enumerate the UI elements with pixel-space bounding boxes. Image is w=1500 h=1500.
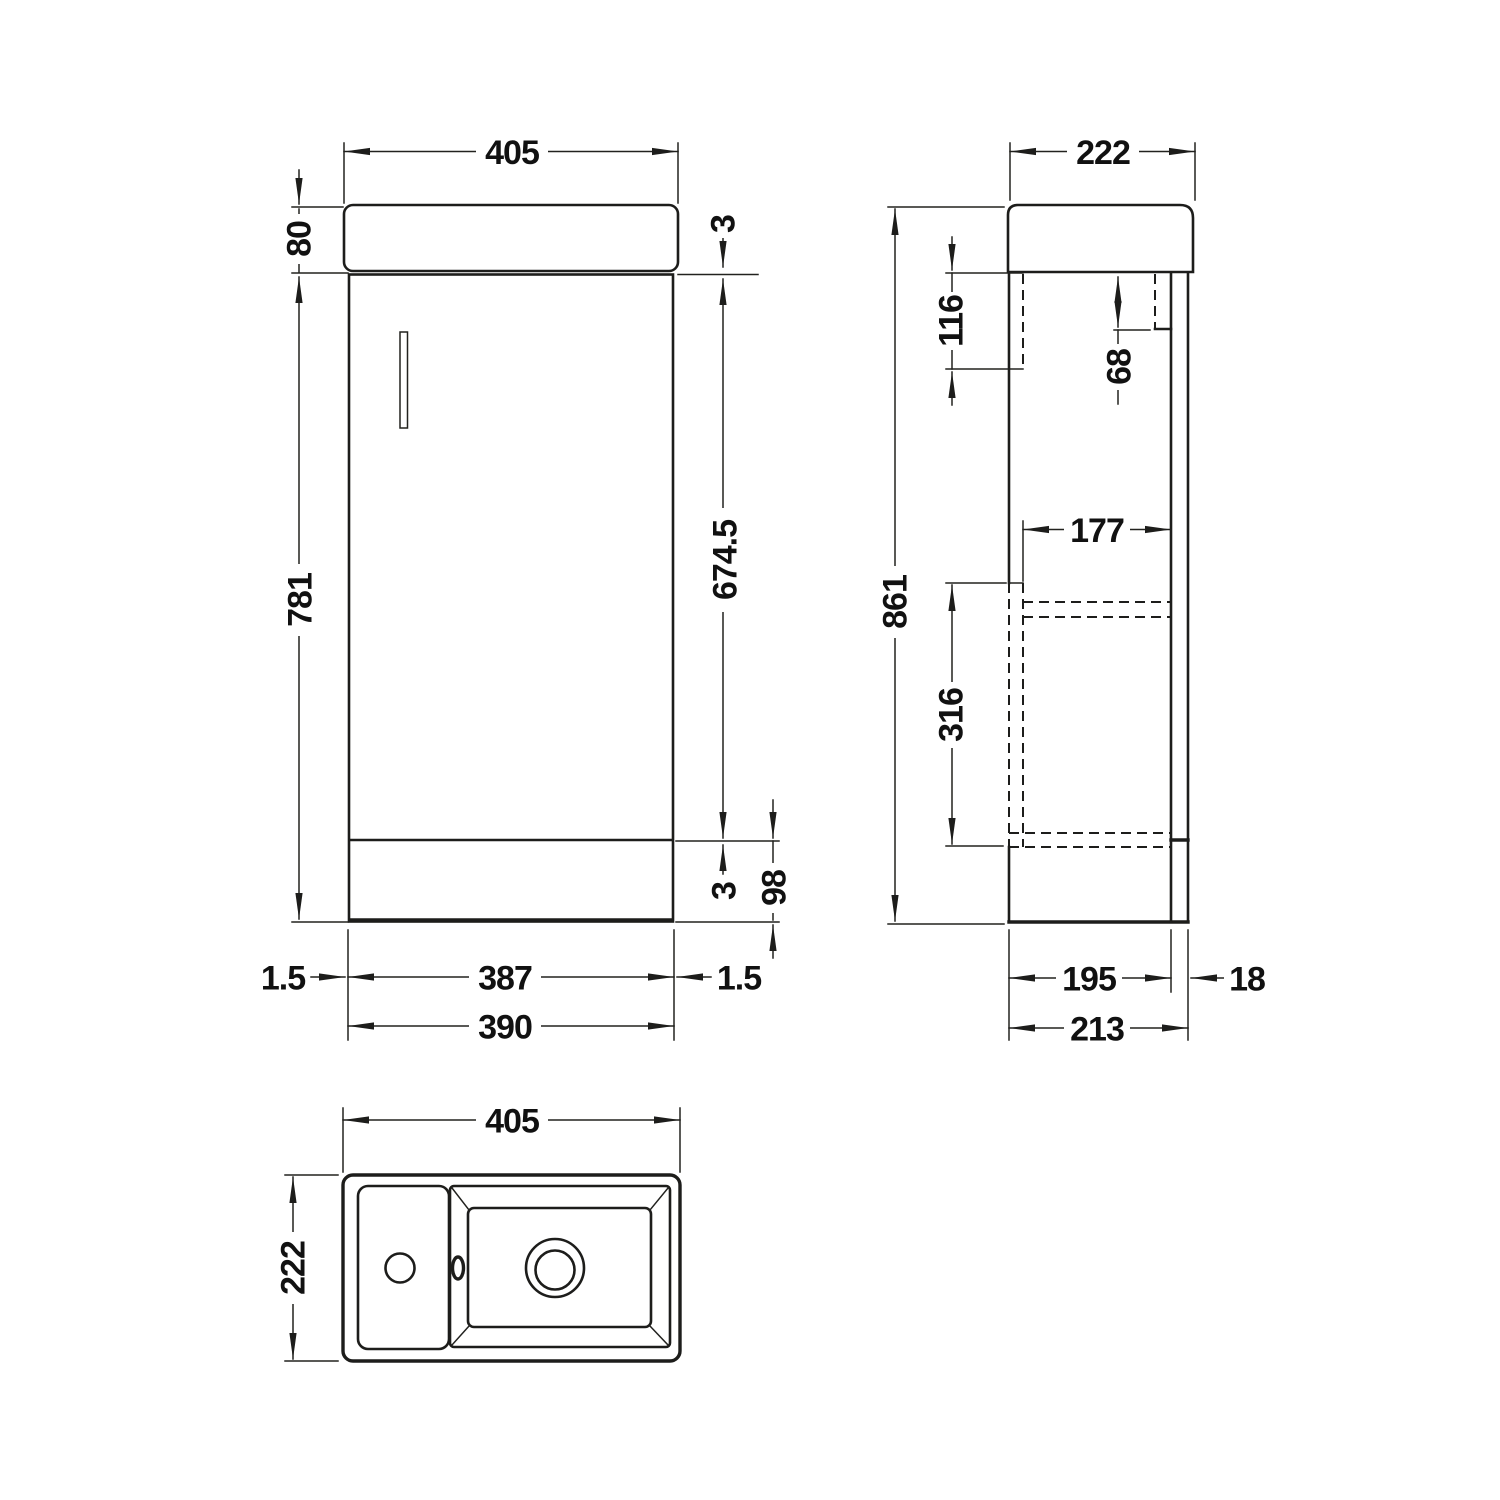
hidden-detail-lines bbox=[1009, 274, 1171, 847]
svg-text:861: 861 bbox=[876, 575, 914, 629]
svg-text:222: 222 bbox=[1076, 134, 1130, 172]
svg-text:387: 387 bbox=[478, 959, 532, 997]
dim-front-cabinet-width: 390 bbox=[469, 1008, 541, 1046]
bowl-outer-outline bbox=[450, 1186, 670, 1347]
side-view-outlines bbox=[1008, 205, 1193, 922]
dim-side-overall-depth: 213 bbox=[1064, 1010, 1130, 1048]
technical-drawing-page: 405 80 3 781 674.5 3 bbox=[0, 0, 1500, 1500]
svg-text:222: 222 bbox=[274, 1241, 312, 1295]
svg-text:1.5: 1.5 bbox=[261, 959, 305, 997]
dim-front-cabinet-height: 781 bbox=[281, 564, 319, 636]
side-view-dimensions bbox=[888, 143, 1224, 1040]
svg-text:213: 213 bbox=[1070, 1010, 1124, 1048]
tap-hole bbox=[386, 1254, 415, 1283]
dim-side-overall-height: 861 bbox=[876, 566, 914, 638]
svg-text:781: 781 bbox=[281, 573, 319, 627]
dim-front-top-gap: 3 bbox=[704, 210, 742, 238]
svg-text:3: 3 bbox=[705, 882, 743, 900]
vanity-unit-technical-drawing: 405 80 3 781 674.5 3 bbox=[0, 0, 1500, 1500]
dim-side-hinge-top-offset: 116 bbox=[932, 292, 970, 350]
svg-text:405: 405 bbox=[485, 1102, 539, 1140]
side-view: 222 861 116 68 177 316 bbox=[876, 134, 1270, 1049]
dim-front-right-gap: 1.5 bbox=[712, 959, 766, 997]
dim-side-hinge-front-offset: 68 bbox=[1100, 344, 1138, 390]
svg-text:316: 316 bbox=[932, 688, 970, 742]
dim-front-basin-width: 405 bbox=[476, 134, 548, 172]
dim-plan-width: 405 bbox=[476, 1102, 548, 1140]
svg-text:80: 80 bbox=[280, 221, 318, 257]
basin-front-outline bbox=[344, 205, 678, 271]
dim-front-basin-height: 80 bbox=[280, 214, 318, 264]
svg-text:177: 177 bbox=[1070, 512, 1124, 550]
svg-text:195: 195 bbox=[1062, 960, 1116, 998]
dim-side-internal-depth: 177 bbox=[1064, 512, 1130, 550]
tap-ledge-outline bbox=[358, 1186, 449, 1349]
dim-front-door-width: 387 bbox=[469, 959, 541, 997]
svg-text:674.5: 674.5 bbox=[706, 520, 744, 600]
front-view-outlines bbox=[344, 205, 678, 922]
dim-side-door-thickness: 18 bbox=[1224, 960, 1270, 998]
svg-text:68: 68 bbox=[1100, 349, 1138, 385]
svg-text:1.5: 1.5 bbox=[717, 959, 761, 997]
dim-front-bottom-gap: 3 bbox=[705, 877, 743, 905]
svg-text:405: 405 bbox=[485, 134, 539, 172]
basin-plan-outline bbox=[343, 1175, 680, 1361]
plan-view-outlines bbox=[343, 1175, 680, 1361]
plan-view: 405 222 bbox=[274, 1102, 680, 1361]
bowl-inner-outline bbox=[468, 1208, 651, 1327]
dim-plan-depth: 222 bbox=[274, 1232, 312, 1304]
dim-front-plinth-height: 98 bbox=[755, 863, 793, 913]
overflow-hole bbox=[453, 1257, 464, 1279]
cabinet-front-outline bbox=[349, 275, 673, 922]
bowl-corner-bevels bbox=[452, 1188, 668, 1345]
dim-side-basin-depth: 222 bbox=[1067, 134, 1139, 172]
front-view: 405 80 3 781 674.5 3 bbox=[256, 134, 793, 1047]
basin-side-outline bbox=[1008, 205, 1193, 272]
door-handle bbox=[400, 332, 408, 428]
drain-inner bbox=[536, 1251, 575, 1290]
dim-front-left-gap: 1.5 bbox=[256, 959, 310, 997]
svg-text:390: 390 bbox=[478, 1008, 532, 1046]
plan-view-labels: 405 222 bbox=[274, 1102, 548, 1304]
svg-text:3: 3 bbox=[704, 215, 742, 233]
svg-text:116: 116 bbox=[932, 295, 970, 347]
dim-front-door-height: 674.5 bbox=[706, 508, 744, 612]
dim-side-carcass-depth: 195 bbox=[1056, 960, 1122, 998]
svg-text:18: 18 bbox=[1229, 960, 1265, 998]
dim-side-internal-height: 316 bbox=[932, 682, 970, 748]
svg-text:98: 98 bbox=[755, 870, 793, 906]
